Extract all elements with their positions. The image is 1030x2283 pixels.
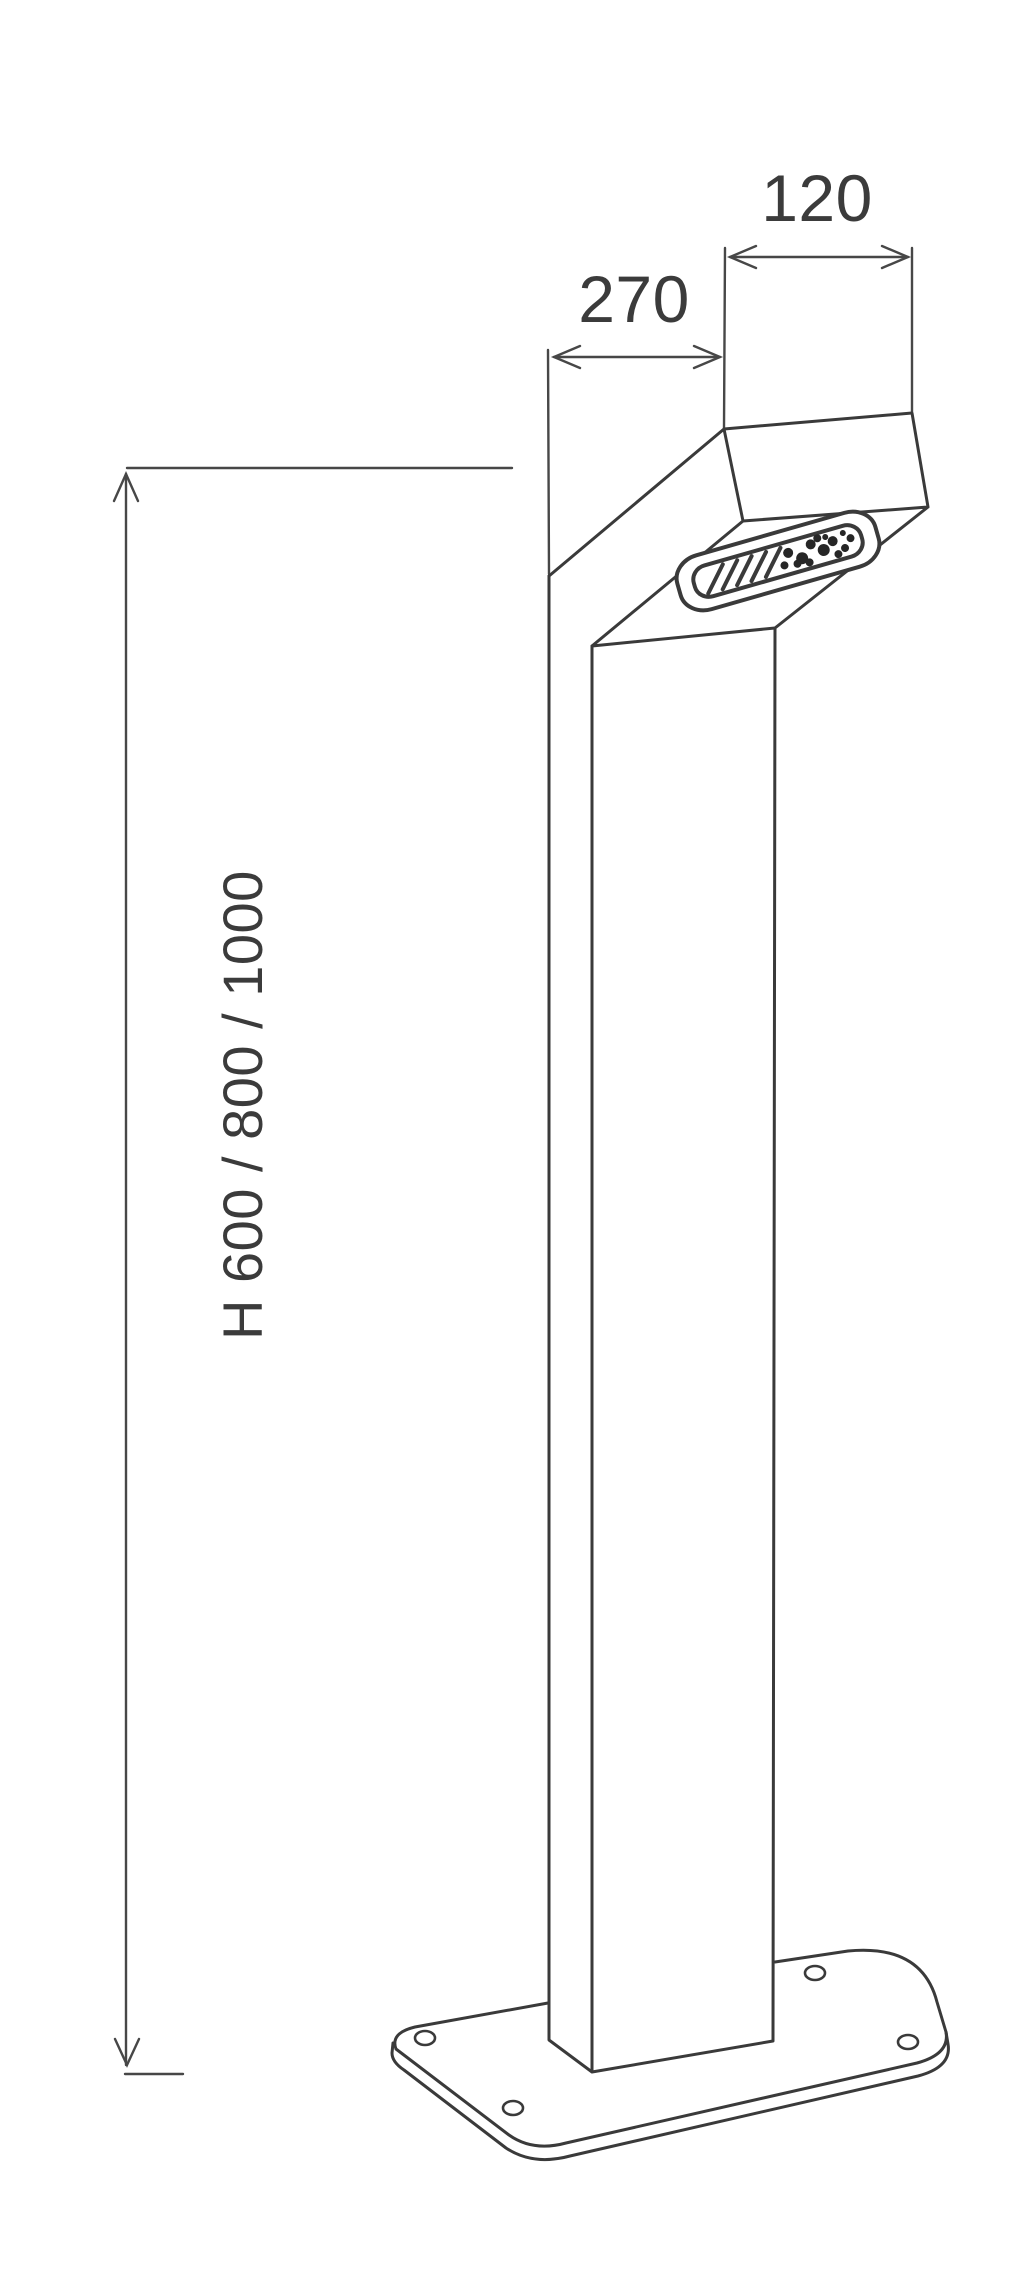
head-depth-dimension-label: 270 — [578, 262, 690, 336]
head-depth-dimension: 270 — [548, 262, 720, 574]
mounting-hole — [898, 2035, 918, 2049]
mounting-hole — [415, 2031, 435, 2045]
bollard-post — [549, 576, 775, 2072]
base-plate-top-outline — [395, 1950, 947, 2146]
mounting-hole — [805, 1966, 825, 1980]
mounting-hole — [503, 2101, 523, 2115]
head-width-dimension-label: 120 — [761, 161, 873, 235]
depth-extension-line-left — [548, 350, 549, 574]
bollard-technical-drawing: H 600 / 800 / 1000 270 120 — [0, 0, 1030, 2283]
base-plate — [392, 1950, 948, 2159]
post-edges — [549, 576, 775, 2072]
light-aperture — [671, 506, 884, 617]
height-dimension-label: H 600 / 800 / 1000 — [211, 870, 274, 1340]
drawing-canvas: H 600 / 800 / 1000 270 120 — [0, 0, 1030, 2283]
height-dimension: H 600 / 800 / 1000 — [114, 468, 512, 2074]
head-width-dimension: 120 — [724, 161, 912, 428]
bollard-head — [549, 413, 928, 646]
width-extension-line-left — [724, 248, 725, 428]
base-plate-thickness-outline — [392, 2032, 948, 2160]
